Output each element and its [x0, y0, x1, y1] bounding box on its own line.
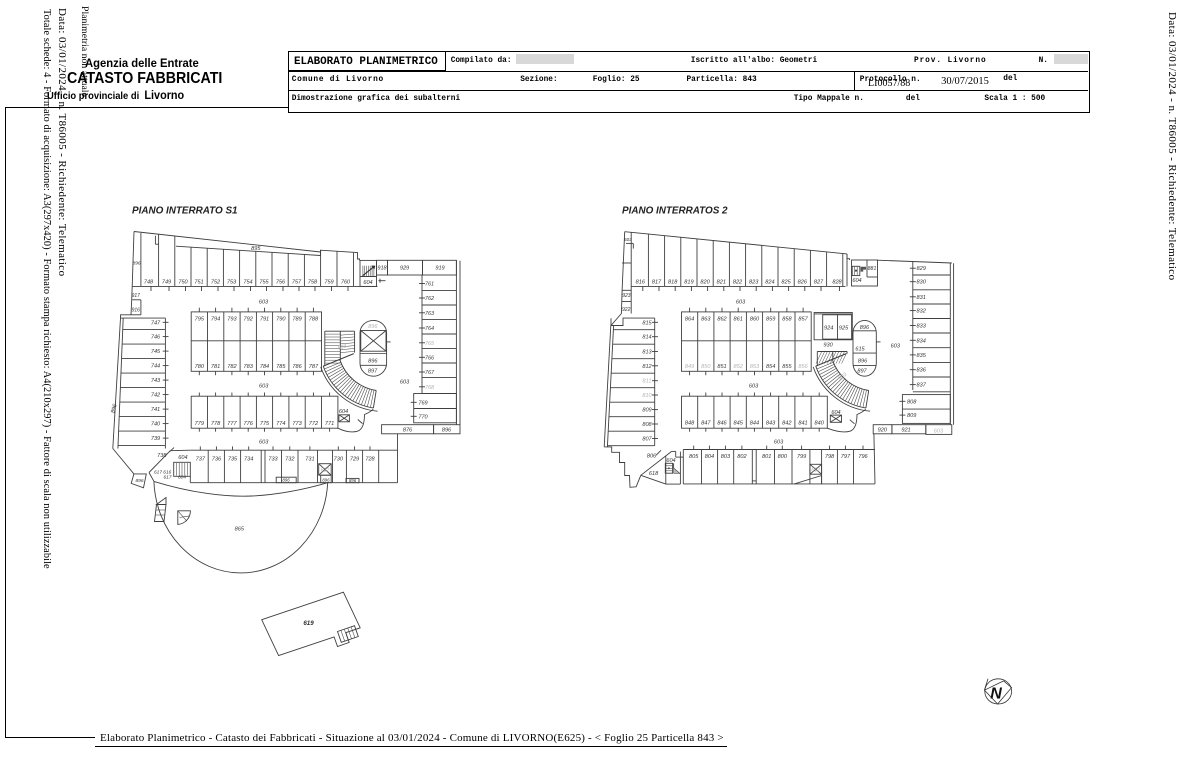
- svg-text:917: 917: [132, 293, 141, 299]
- svg-text:825: 825: [781, 279, 791, 285]
- svg-text:744: 744: [151, 364, 160, 370]
- svg-text:746: 746: [151, 335, 161, 341]
- svg-text:881: 881: [868, 266, 877, 272]
- svg-text:603: 603: [891, 343, 901, 349]
- svg-text:780: 780: [195, 364, 205, 370]
- svg-text:841: 841: [798, 421, 807, 427]
- svg-text:750: 750: [178, 279, 188, 285]
- svg-text:896: 896: [858, 359, 868, 365]
- svg-text:897: 897: [368, 369, 378, 375]
- svg-text:809: 809: [642, 408, 651, 414]
- svg-text:918: 918: [377, 266, 387, 272]
- svg-text:896: 896: [133, 261, 141, 267]
- svg-text:N: N: [990, 686, 1002, 703]
- svg-text:860: 860: [750, 316, 760, 322]
- svg-text:857: 857: [798, 316, 808, 322]
- svg-text:767: 767: [425, 370, 435, 376]
- svg-text:833: 833: [917, 324, 927, 330]
- svg-text:852: 852: [734, 364, 744, 370]
- svg-text:854: 854: [766, 364, 775, 370]
- svg-text:810: 810: [642, 393, 652, 399]
- svg-text:737: 737: [196, 456, 206, 462]
- svg-text:822: 822: [733, 279, 743, 285]
- svg-text:798: 798: [825, 454, 835, 460]
- svg-text:811: 811: [643, 379, 652, 385]
- svg-text:823: 823: [749, 279, 759, 285]
- svg-text:603: 603: [736, 299, 746, 305]
- svg-text:762: 762: [425, 296, 435, 302]
- svg-text:603: 603: [934, 429, 944, 435]
- svg-text:896: 896: [322, 477, 330, 482]
- svg-text:923: 923: [622, 293, 631, 299]
- svg-text:748: 748: [144, 279, 154, 285]
- svg-text:603: 603: [400, 379, 410, 385]
- svg-text:795: 795: [195, 316, 205, 322]
- svg-text:768: 768: [425, 385, 435, 391]
- svg-text:786: 786: [292, 364, 302, 370]
- svg-text:809: 809: [907, 413, 916, 419]
- svg-text:804: 804: [705, 454, 714, 460]
- svg-text:769: 769: [418, 400, 427, 406]
- svg-text:855: 855: [782, 364, 792, 370]
- svg-text:779: 779: [195, 421, 204, 427]
- svg-text:617: 617: [154, 469, 162, 475]
- svg-text:749: 749: [162, 279, 171, 285]
- svg-text:800: 800: [778, 454, 788, 460]
- svg-text:801: 801: [762, 454, 771, 460]
- svg-text:862: 862: [717, 316, 727, 322]
- svg-text:924: 924: [824, 326, 833, 332]
- svg-text:919: 919: [435, 266, 444, 272]
- svg-text:763: 763: [425, 311, 435, 317]
- svg-text:788: 788: [309, 316, 319, 322]
- svg-text:603: 603: [259, 299, 269, 305]
- svg-text:799: 799: [797, 454, 806, 460]
- svg-text:731: 731: [305, 456, 314, 462]
- svg-text:618: 618: [649, 471, 659, 477]
- svg-text:807: 807: [642, 437, 652, 443]
- svg-text:859: 859: [766, 316, 775, 322]
- svg-text:603: 603: [749, 384, 759, 390]
- svg-text:776: 776: [244, 421, 254, 427]
- svg-text:789: 789: [292, 316, 301, 322]
- svg-text:612: 612: [811, 467, 820, 473]
- svg-text:861: 861: [734, 316, 743, 322]
- svg-text:792: 792: [244, 316, 254, 322]
- svg-text:818: 818: [668, 279, 678, 285]
- svg-text:858: 858: [782, 316, 792, 322]
- svg-text:853: 853: [750, 364, 760, 370]
- svg-text:896: 896: [349, 478, 357, 483]
- svg-text:829: 829: [917, 266, 926, 272]
- svg-text:864: 864: [685, 316, 694, 322]
- svg-text:832: 832: [917, 309, 927, 315]
- svg-text:PIANO INTERRATOS 2: PIANO INTERRATOS 2: [622, 206, 728, 217]
- svg-text:840: 840: [815, 421, 825, 427]
- svg-text:743: 743: [151, 378, 161, 384]
- svg-text:603: 603: [259, 384, 269, 390]
- svg-text:771: 771: [325, 421, 334, 427]
- svg-text:729: 729: [350, 456, 359, 462]
- svg-text:766: 766: [425, 355, 435, 361]
- svg-text:790: 790: [276, 316, 286, 322]
- svg-text:896: 896: [442, 428, 452, 434]
- svg-text:846: 846: [717, 421, 727, 427]
- svg-text:730: 730: [334, 456, 344, 462]
- svg-text:865: 865: [235, 527, 245, 533]
- svg-text:754: 754: [243, 279, 252, 285]
- svg-text:815: 815: [642, 320, 652, 326]
- svg-text:770: 770: [418, 414, 428, 420]
- svg-text:797: 797: [841, 454, 851, 460]
- svg-text:751: 751: [194, 279, 203, 285]
- svg-text:806: 806: [647, 453, 657, 459]
- svg-text:925: 925: [839, 326, 849, 332]
- svg-text:827: 827: [814, 279, 824, 285]
- svg-text:775: 775: [260, 421, 270, 427]
- svg-text:757: 757: [292, 279, 302, 285]
- svg-text:753: 753: [227, 279, 237, 285]
- svg-text:756: 756: [276, 279, 286, 285]
- svg-text:896: 896: [860, 325, 870, 331]
- svg-text:765: 765: [425, 341, 435, 347]
- svg-text:863: 863: [701, 316, 711, 322]
- svg-text:782: 782: [227, 364, 237, 370]
- svg-text:842: 842: [782, 421, 792, 427]
- svg-text:787: 787: [309, 364, 319, 370]
- svg-text:808: 808: [907, 399, 917, 405]
- svg-text:777: 777: [227, 421, 237, 427]
- svg-text:803: 803: [721, 454, 731, 460]
- svg-text:808: 808: [642, 422, 652, 428]
- svg-text:603: 603: [259, 439, 269, 445]
- svg-text:760: 760: [341, 279, 351, 285]
- svg-text:616: 616: [163, 469, 171, 475]
- svg-text:733: 733: [268, 456, 278, 462]
- svg-text:742: 742: [151, 393, 161, 399]
- svg-text:819: 819: [684, 279, 693, 285]
- svg-text:764: 764: [425, 326, 434, 332]
- svg-text:835: 835: [917, 353, 927, 359]
- svg-text:921: 921: [901, 427, 910, 433]
- svg-text:814: 814: [642, 335, 651, 341]
- svg-text:603: 603: [624, 237, 632, 242]
- svg-text:612: 612: [321, 468, 330, 474]
- svg-text:617: 617: [163, 475, 171, 481]
- svg-text:604: 604: [178, 455, 187, 461]
- svg-text:836: 836: [917, 368, 927, 374]
- svg-text:848: 848: [685, 421, 695, 427]
- svg-text:847: 847: [701, 421, 711, 427]
- svg-text:781: 781: [211, 364, 220, 370]
- svg-text:758: 758: [308, 279, 318, 285]
- svg-text:820: 820: [700, 279, 710, 285]
- svg-text:791: 791: [260, 316, 269, 322]
- svg-text:817: 817: [652, 279, 662, 285]
- svg-text:837: 837: [917, 383, 927, 389]
- svg-text:745: 745: [151, 349, 161, 355]
- svg-text:922: 922: [622, 307, 631, 313]
- svg-text:759: 759: [324, 279, 333, 285]
- svg-text:755: 755: [259, 279, 269, 285]
- svg-text:897: 897: [857, 369, 867, 375]
- svg-text:929: 929: [400, 266, 409, 272]
- svg-text:796: 796: [858, 454, 868, 460]
- svg-text:604: 604: [363, 280, 372, 286]
- svg-text:741: 741: [151, 407, 160, 413]
- svg-text:794: 794: [211, 316, 220, 322]
- svg-text:812: 812: [642, 364, 652, 370]
- svg-text:896: 896: [368, 324, 378, 330]
- svg-text:805: 805: [689, 454, 699, 460]
- svg-text:735: 735: [228, 456, 238, 462]
- svg-text:834: 834: [917, 338, 926, 344]
- svg-text:761: 761: [425, 282, 434, 288]
- svg-text:930: 930: [823, 342, 833, 348]
- svg-text:739: 739: [151, 436, 160, 442]
- svg-text:738: 738: [157, 453, 167, 459]
- svg-text:844: 844: [750, 421, 759, 427]
- svg-text:816: 816: [636, 279, 646, 285]
- svg-text:772: 772: [309, 421, 319, 427]
- svg-text:851: 851: [717, 364, 726, 370]
- svg-text:856: 856: [798, 364, 808, 370]
- svg-text:896: 896: [282, 478, 290, 483]
- svg-text:896: 896: [110, 403, 118, 414]
- svg-text:740: 740: [151, 422, 161, 428]
- svg-text:845: 845: [734, 421, 744, 427]
- svg-text:850: 850: [701, 364, 711, 370]
- svg-text:821: 821: [717, 279, 726, 285]
- svg-text:603: 603: [337, 343, 347, 351]
- svg-text:876: 876: [403, 428, 413, 434]
- svg-text:784: 784: [260, 364, 269, 370]
- svg-text:604: 604: [852, 278, 861, 284]
- svg-text:826: 826: [798, 279, 808, 285]
- svg-text:734: 734: [244, 456, 253, 462]
- svg-text:824: 824: [765, 279, 774, 285]
- svg-text:774: 774: [276, 421, 285, 427]
- svg-text:920: 920: [878, 427, 888, 433]
- svg-text:773: 773: [292, 421, 302, 427]
- svg-text:802: 802: [737, 454, 747, 460]
- svg-text:849: 849: [685, 364, 694, 370]
- svg-text:828: 828: [832, 279, 842, 285]
- svg-text:843: 843: [766, 421, 776, 427]
- svg-text:793: 793: [227, 316, 237, 322]
- svg-text:732: 732: [285, 456, 295, 462]
- svg-text:813: 813: [642, 350, 652, 356]
- svg-text:747: 747: [151, 320, 161, 326]
- svg-text:896: 896: [368, 358, 378, 364]
- svg-text:783: 783: [244, 364, 254, 370]
- svg-text:896: 896: [135, 478, 143, 484]
- svg-text:831: 831: [917, 295, 926, 301]
- svg-text:830: 830: [917, 280, 927, 286]
- svg-text:728: 728: [365, 456, 375, 462]
- svg-text:778: 778: [211, 421, 221, 427]
- svg-text:615: 615: [855, 346, 865, 352]
- svg-text:736: 736: [212, 456, 222, 462]
- svg-text:785: 785: [276, 364, 286, 370]
- svg-text:619: 619: [303, 620, 314, 627]
- svg-text:752: 752: [211, 279, 221, 285]
- svg-text:895: 895: [251, 246, 261, 252]
- svg-text:604: 604: [178, 475, 186, 481]
- svg-text:604: 604: [339, 409, 348, 415]
- svg-text:603: 603: [774, 439, 784, 445]
- svg-text:PIANO INTERRATO S1: PIANO INTERRATO S1: [132, 206, 238, 217]
- svg-text:916: 916: [132, 308, 141, 314]
